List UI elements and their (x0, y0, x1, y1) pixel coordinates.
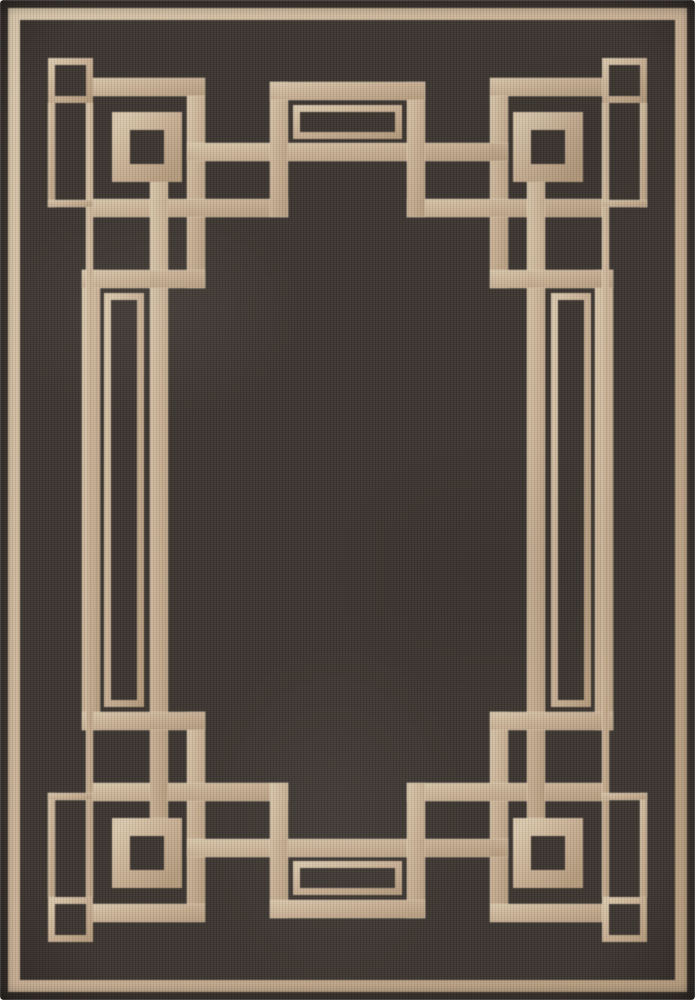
rug-pattern-graphic (0, 0, 695, 1000)
rug-product-photo (0, 0, 695, 1000)
top-bump-riser-right (407, 82, 425, 217)
top-long-rail (187, 143, 508, 161)
right-frame-line (602, 103, 609, 897)
bottom-band-left (93, 904, 205, 922)
top-bump-cap (270, 82, 425, 100)
top-band-left (93, 78, 205, 96)
bottom-bump-riser-right (407, 783, 425, 918)
top-band-right (490, 78, 602, 96)
right-bump-top (490, 270, 613, 288)
top-hook-left (93, 199, 288, 217)
bottom-hook-right (407, 783, 602, 801)
bottom-right-ascender (490, 712, 508, 904)
bottom-hook-left (93, 783, 288, 801)
left-bump-top (82, 270, 205, 288)
slot-bl-horizontal (48, 793, 93, 800)
slot-br-vertical (640, 793, 647, 897)
right-bump-bottom (490, 712, 613, 730)
slot-bl-vertical (48, 793, 55, 897)
left-frame-line (86, 103, 93, 897)
top-bump-riser-left (270, 82, 288, 217)
left-bump-bottom (82, 712, 205, 730)
slot-tl-vertical (48, 103, 55, 207)
bottom-band-right (490, 904, 602, 922)
slot-br-horizontal (602, 793, 647, 800)
slot-tl-horizontal (48, 200, 93, 207)
slot-tr-vertical (640, 103, 647, 207)
bottom-long-rail (187, 839, 508, 857)
slot-tr-horizontal (602, 200, 647, 207)
bottom-left-ascender (187, 712, 205, 904)
bottom-bump-cap (270, 900, 425, 918)
bottom-bump-riser-left (270, 783, 288, 918)
top-right-descender (490, 96, 508, 288)
top-hook-right (407, 199, 602, 217)
top-left-descender (187, 96, 205, 288)
